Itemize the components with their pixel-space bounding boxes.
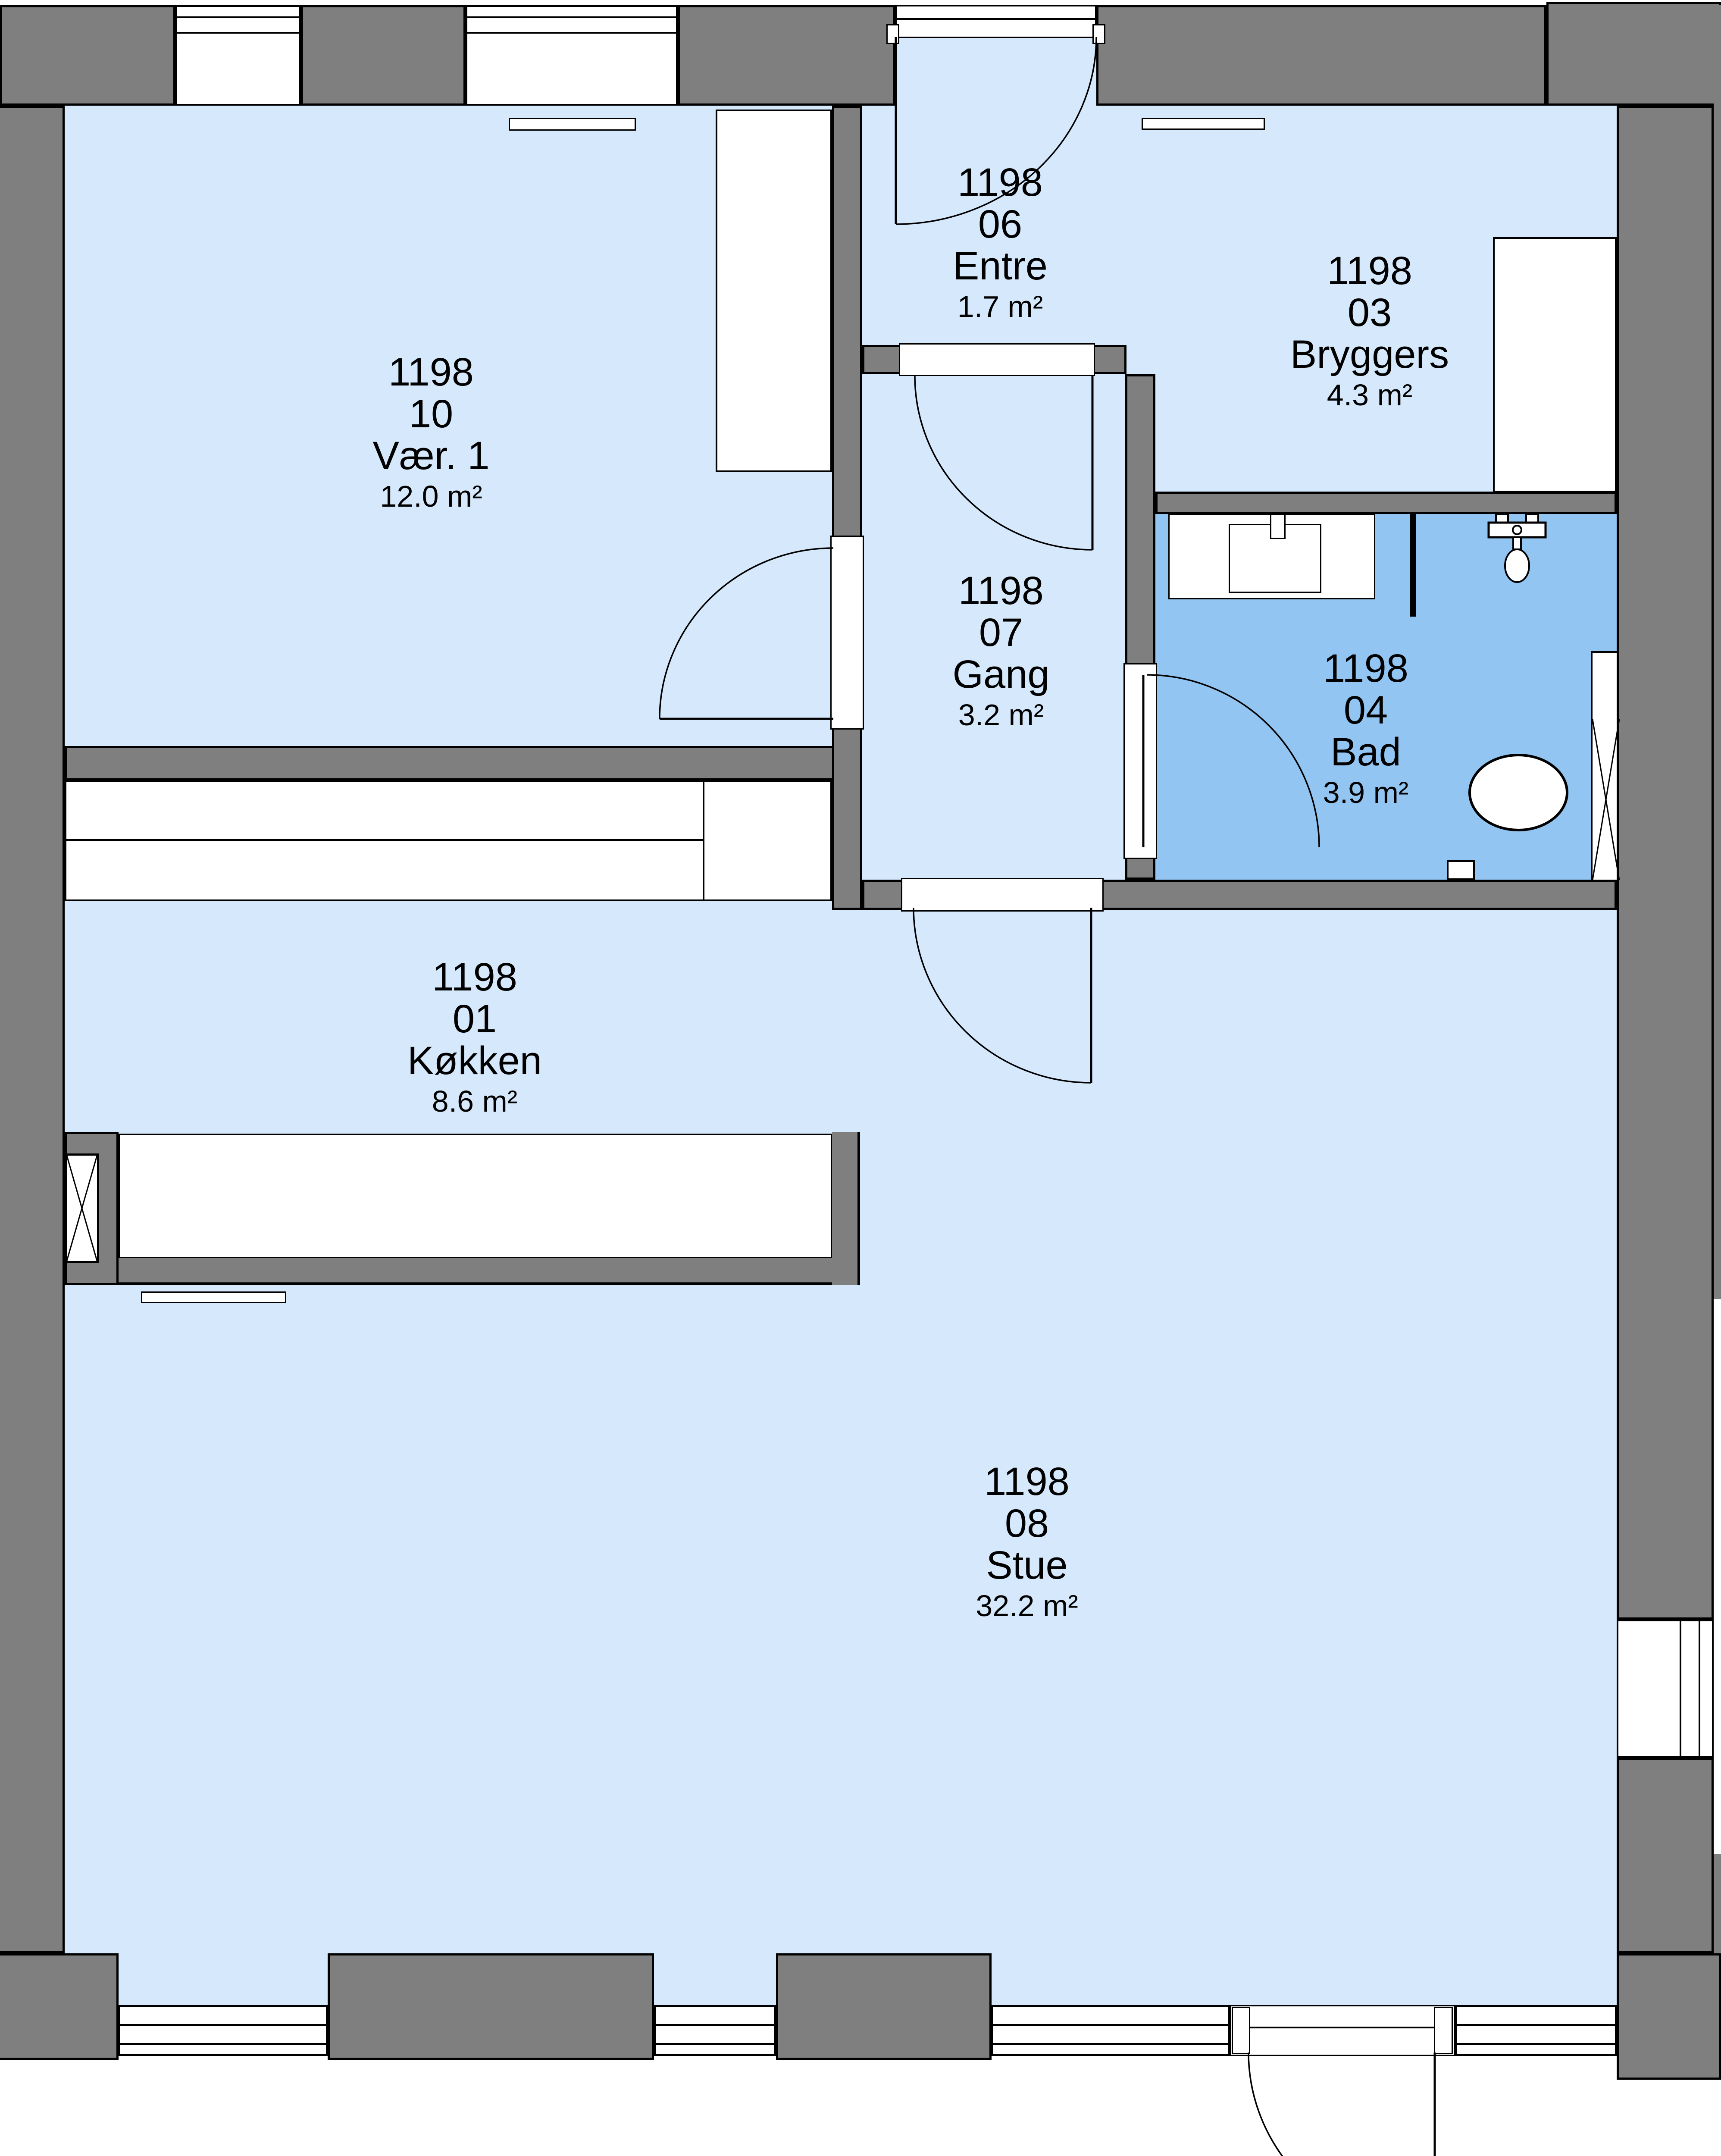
room-code: 1198: [1290, 250, 1449, 292]
floor-stue: [65, 1285, 1617, 1953]
duct-shaft-left: [65, 1153, 99, 1263]
window-top-2-glazing-b: [466, 32, 678, 34]
vent-bryggers: [1142, 118, 1265, 130]
room-unit: 08: [976, 1503, 1078, 1545]
room-code: 1198: [953, 162, 1048, 204]
sink-tap: [1270, 514, 1286, 539]
shower-partition: [1410, 514, 1416, 617]
window-bottom-3-glazing-b: [992, 2043, 1230, 2045]
window-top-1: [175, 5, 301, 106]
patio-door-post-right: [1434, 2007, 1453, 2054]
room-unit: 01: [407, 998, 542, 1040]
entrance-door-head: [895, 5, 1096, 38]
floor-stue-upper: [832, 910, 1617, 1285]
room-name: Køkken: [407, 1040, 542, 1082]
room-name: Stue: [976, 1545, 1078, 1586]
wall-top-pier-3: [678, 5, 895, 106]
room-area: 32.2 m²: [976, 1586, 1078, 1625]
room-code: 1198: [952, 570, 1049, 612]
room-label-koekken: 1198 01 Køkken 8.6 m²: [407, 956, 542, 1121]
wall-bottom-pier-1: [0, 1953, 119, 2060]
room-code: 1198: [372, 351, 489, 393]
floor-window-recess-3: [992, 1953, 1617, 2007]
wall-vaer1-gang: [832, 106, 862, 910]
door-frame-gang-bad: [1123, 663, 1157, 859]
room-label-bryggers: 1198 03 Bryggers 4.3 m²: [1290, 250, 1449, 414]
window-bottom-3-glazing-a: [992, 2024, 1230, 2026]
closet-bryggers: [1493, 237, 1617, 492]
room-label-stue: 1198 08 Stue 32.2 m²: [976, 1461, 1078, 1625]
window-bottom-2-glazing-b: [654, 2043, 776, 2045]
wall-top-pier-4: [1096, 5, 1546, 106]
kitchen-counter-divider-h: [65, 839, 703, 841]
wall-bottom-corner: [1617, 1953, 1721, 2080]
patio-door-post-left: [1232, 2007, 1250, 2054]
room-unit: 07: [952, 612, 1049, 654]
room-area: 8.6 m²: [407, 1082, 542, 1121]
wardrobe-vaer1: [716, 110, 832, 472]
room-area: 3.9 m²: [1323, 773, 1408, 812]
room-label-bad: 1198 04 Bad 3.9 m²: [1323, 648, 1408, 812]
entrance-door-post-left: [886, 24, 899, 44]
window-right-glazing-b: [1699, 1620, 1700, 1758]
room-name: Entre: [953, 245, 1048, 287]
wall-right-upper: [1617, 106, 1714, 1620]
room-name: Vær. 1: [372, 435, 489, 477]
door-frame-vaer1: [830, 536, 864, 730]
window-bottom-3: [992, 2005, 1230, 2056]
peninsula-wall-south: [119, 1258, 860, 1285]
kitchen-counter: [65, 780, 832, 901]
entrance-door-post-right: [1092, 24, 1105, 44]
window-bottom-4: [1455, 2005, 1617, 2056]
kitchen-counter-divider-v: [703, 780, 704, 901]
room-label-entre: 1198 06 Entre 1.7 m²: [953, 162, 1048, 326]
room-code: 1198: [1323, 648, 1408, 689]
room-area: 3.2 m²: [952, 696, 1049, 734]
wall-right-lower: [1617, 1758, 1714, 1953]
room-code: 1198: [976, 1461, 1078, 1503]
floor-window-recess-1: [119, 1953, 328, 2007]
room-unit: 10: [372, 393, 489, 435]
wall-bryggers-bad: [1155, 492, 1617, 514]
room-name: Gang: [952, 654, 1049, 696]
vent-stue: [141, 1291, 286, 1303]
room-code: 1198: [407, 956, 542, 998]
window-top-1-glazing-a: [175, 16, 301, 18]
wall-bottom-pier-2: [328, 1953, 654, 2060]
window-bottom-1-glazing-b: [119, 2043, 328, 2045]
wall-right-outer-bottom: [1714, 1854, 1721, 1953]
wall-right-outer-top: [1714, 5, 1721, 1299]
window-top-2-glazing-a: [466, 16, 678, 18]
window-bottom-4-glazing-b: [1455, 2043, 1617, 2045]
floor-drain: [1447, 860, 1475, 880]
peninsula-wall-east: [832, 1132, 860, 1285]
window-bottom-2-glazing-a: [654, 2024, 776, 2026]
room-name: Bryggers: [1290, 334, 1449, 376]
room-label-gang: 1198 07 Gang 3.2 m²: [952, 570, 1049, 734]
vent-vaer1: [509, 118, 636, 131]
patio-door-line: [1250, 2027, 1434, 2028]
wall-top-pier-1: [0, 5, 175, 106]
window-bottom-1: [119, 2005, 328, 2056]
window-bottom-4-glazing-a: [1455, 2024, 1617, 2026]
wall-left: [0, 106, 65, 1953]
room-area: 4.3 m²: [1290, 376, 1449, 414]
room-unit: 04: [1323, 689, 1408, 731]
window-top-1-glazing-b: [175, 32, 301, 34]
window-bottom-2: [654, 2005, 776, 2056]
floor-plan: 1198 10 Vær. 1 12.0 m² 1198 06 Entre 1.7…: [0, 0, 1721, 2156]
door-frame-gang-stue: [901, 878, 1104, 912]
window-right-glazing-a: [1680, 1620, 1681, 1758]
peninsula-counter: [119, 1134, 832, 1258]
wall-bottom-pier-3: [776, 1953, 992, 2060]
room-area: 1.7 m²: [953, 287, 1048, 326]
wall-top-pier-2: [301, 5, 466, 106]
floor-entrance-recess: [895, 38, 1096, 106]
door-frame-entre-gang: [899, 343, 1095, 376]
window-bottom-1-glazing-a: [119, 2024, 328, 2026]
room-unit: 06: [953, 204, 1048, 245]
patio-door: [1230, 2005, 1455, 2056]
window-top-2: [466, 5, 678, 106]
room-area: 12.0 m²: [372, 477, 489, 516]
wall-vaer1-koekken: [65, 746, 862, 780]
entrance-door-head-line: [895, 18, 1096, 20]
room-label-vaer1: 1198 10 Vær. 1 12.0 m²: [372, 351, 489, 516]
door-arc-patio: [1249, 2053, 1435, 2156]
floor-window-recess-2: [654, 1953, 776, 2007]
room-unit: 03: [1290, 292, 1449, 334]
wall-top-pier-5: [1546, 2, 1721, 106]
room-name: Bad: [1323, 731, 1408, 773]
